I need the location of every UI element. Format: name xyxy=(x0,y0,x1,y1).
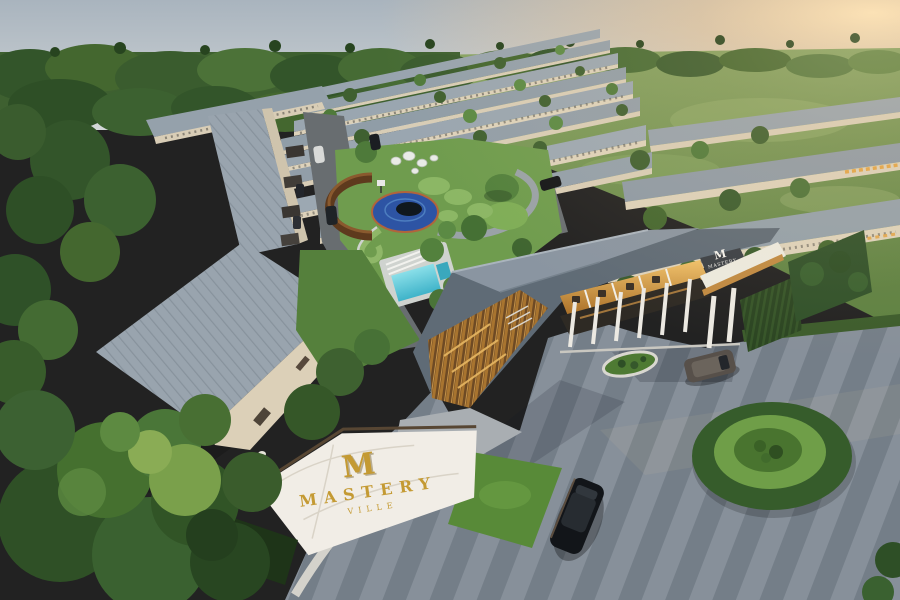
scene-canvas: M MASTERY VILLE xyxy=(0,0,900,600)
rendered-aerial-scene: M MASTERY VILLE xyxy=(0,0,900,600)
dusk-light-wash xyxy=(0,0,900,600)
